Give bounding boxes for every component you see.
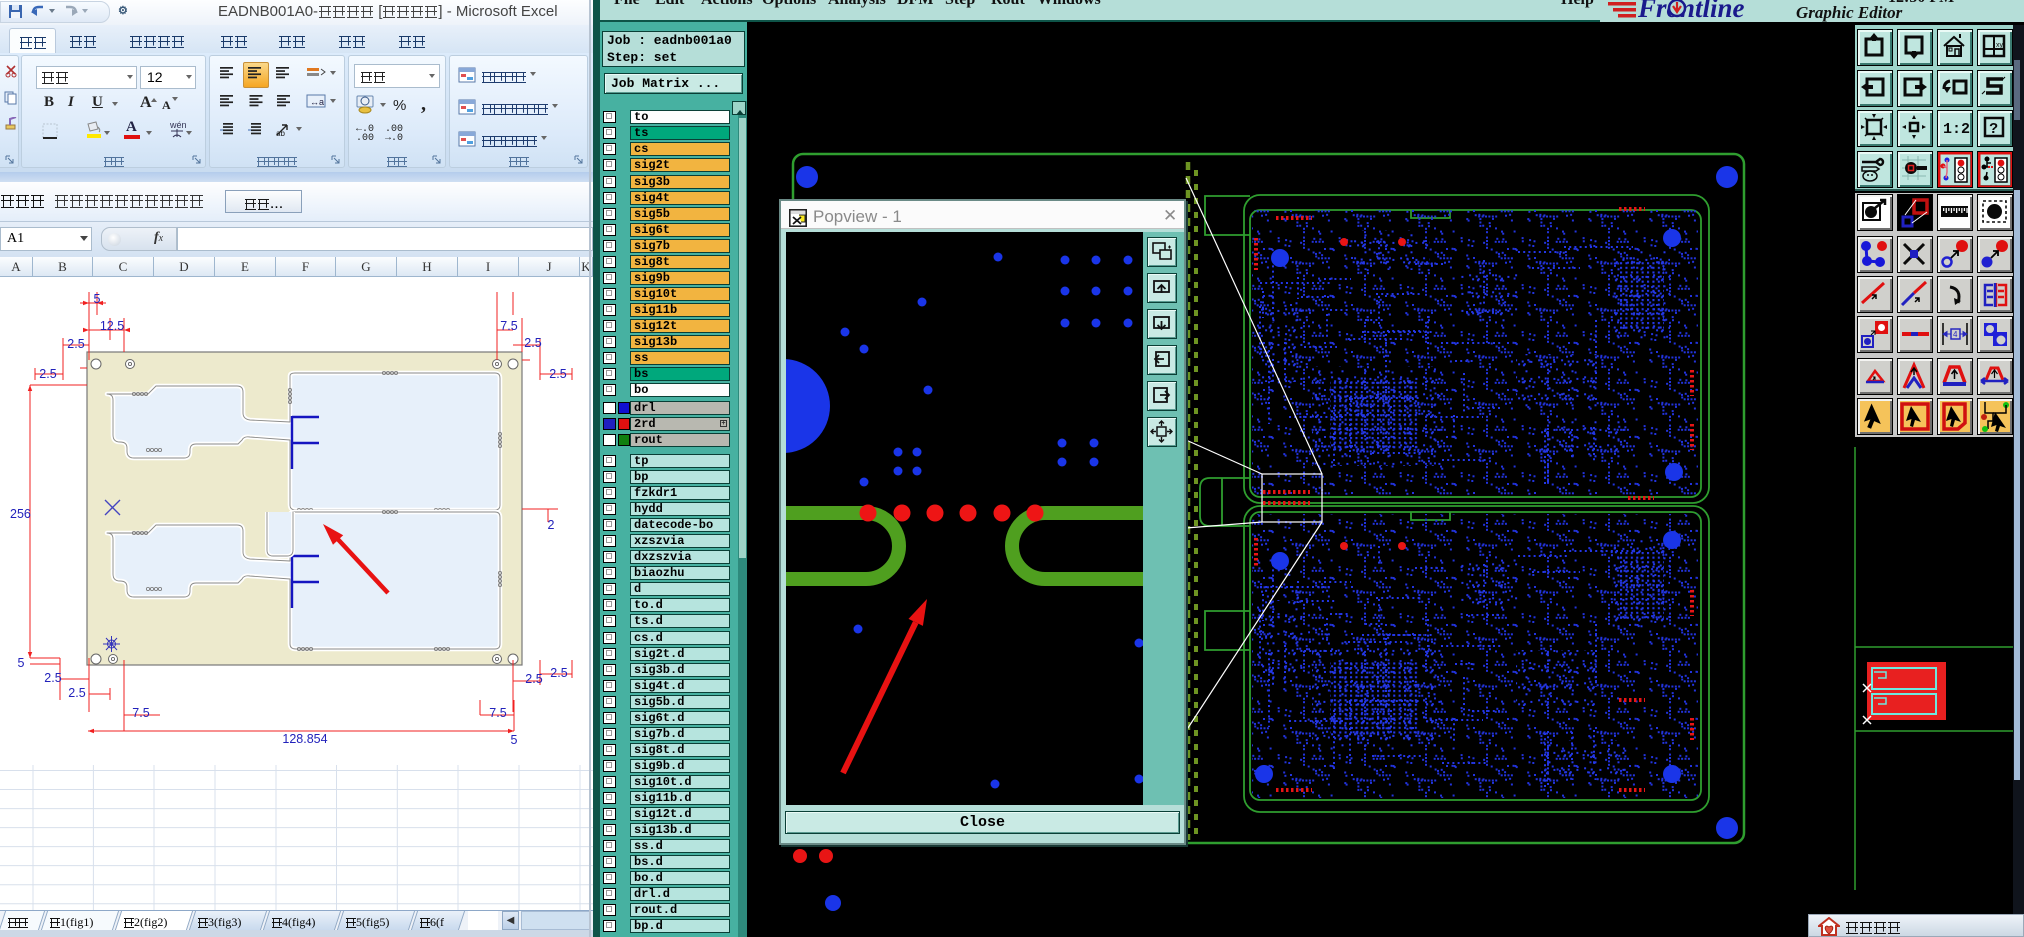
- svg-text:wén: wén: [169, 120, 187, 130]
- svg-text:256: 256: [10, 507, 31, 521]
- svg-text:2.5: 2.5: [68, 686, 85, 700]
- svg-text:2.5: 2.5: [67, 337, 84, 351]
- svg-text:5: 5: [18, 656, 25, 670]
- svg-text:2.5: 2.5: [550, 666, 567, 680]
- svg-text:7.5: 7.5: [489, 706, 506, 720]
- svg-text:5: 5: [511, 733, 518, 747]
- svg-text:4: 4: [1953, 330, 1958, 339]
- svg-text:2.5: 2.5: [525, 672, 542, 686]
- svg-text:5: 5: [94, 292, 101, 306]
- svg-text:2.5: 2.5: [549, 367, 566, 381]
- svg-text:2: 2: [548, 518, 555, 532]
- svg-text:2.5: 2.5: [39, 367, 56, 381]
- svg-text:↔a: ↔a: [310, 97, 324, 107]
- svg-text:Frontline: Frontline: [1637, 0, 1745, 23]
- svg-text:2.5: 2.5: [524, 336, 541, 350]
- svg-text:xy: xy: [1996, 42, 2004, 49]
- svg-text:2.5: 2.5: [44, 671, 61, 685]
- svg-text:128.854: 128.854: [282, 732, 327, 746]
- svg-text:1:2: 1:2: [1943, 121, 1970, 138]
- svg-text:7.5: 7.5: [500, 319, 517, 333]
- svg-text:ab: ab: [276, 129, 285, 138]
- svg-text:?: ?: [1989, 120, 1998, 137]
- svg-text:7.5: 7.5: [132, 706, 149, 720]
- svg-text:12.5: 12.5: [100, 319, 124, 333]
